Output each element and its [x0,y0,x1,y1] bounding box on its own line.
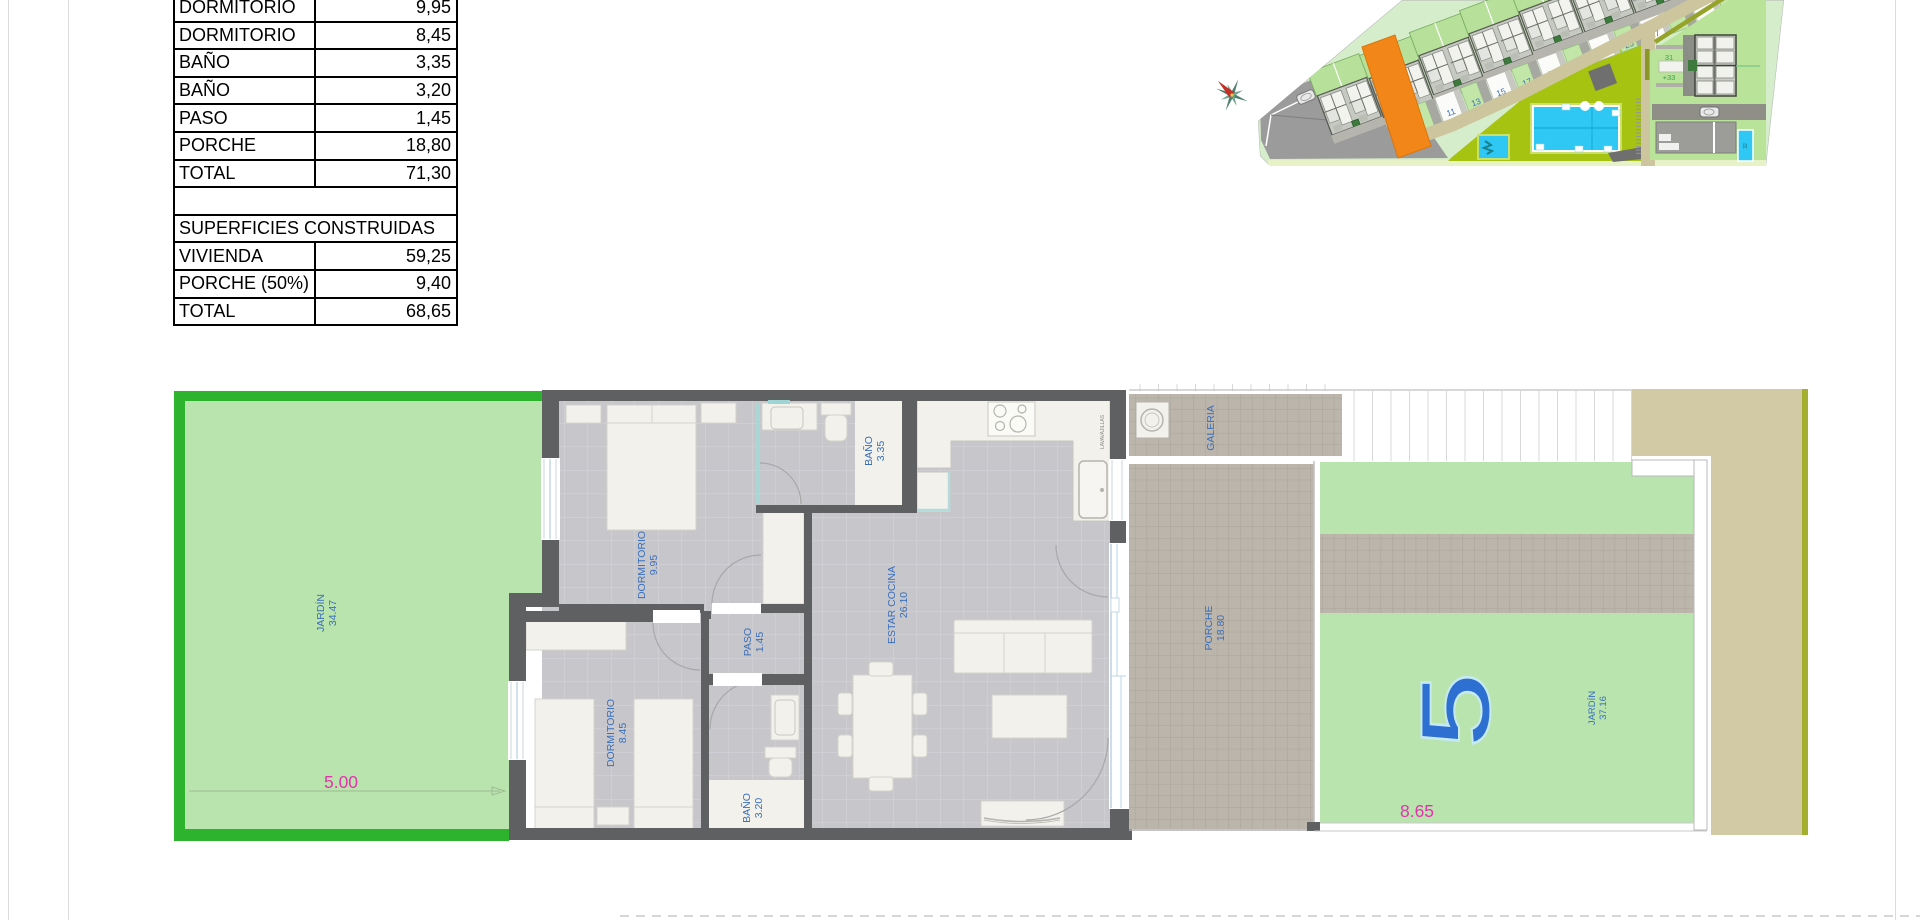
svg-text:LAVAVAJILLAS: LAVAVAJILLAS [1100,414,1106,449]
svg-text:3.35: 3.35 [875,441,887,462]
svg-text:18.80: 18.80 [1215,615,1227,641]
svg-text:GALERIA: GALERIA [1205,405,1217,451]
svg-text:8.45: 8.45 [617,723,629,744]
svg-text:DORMITORIO: DORMITORIO [605,699,617,767]
svg-text:PASO: PASO [742,628,754,656]
svg-text:9.95: 9.95 [648,555,660,576]
svg-text:DORMITORIO: DORMITORIO [636,531,648,599]
svg-text:3.20: 3.20 [753,798,765,819]
svg-text:ESTAR COCINA: ESTAR COCINA [886,566,898,644]
svg-text:5: 5 [1403,673,1510,747]
svg-text:PORCHE: PORCHE [1203,606,1215,651]
svg-text:1.45: 1.45 [754,632,766,653]
svg-text:37.16: 37.16 [1598,696,1609,720]
svg-text:BAÑO: BAÑO [740,793,753,823]
svg-text:34.47: 34.47 [327,600,339,626]
svg-text:JARDÍN: JARDÍN [314,594,327,632]
svg-text:5.00: 5.00 [324,772,358,792]
svg-text:JARDÍN: JARDÍN [1587,691,1598,725]
svg-text:8.65: 8.65 [1400,801,1434,821]
svg-text:26.10: 26.10 [898,592,910,618]
svg-text:BAÑO: BAÑO [862,436,875,466]
